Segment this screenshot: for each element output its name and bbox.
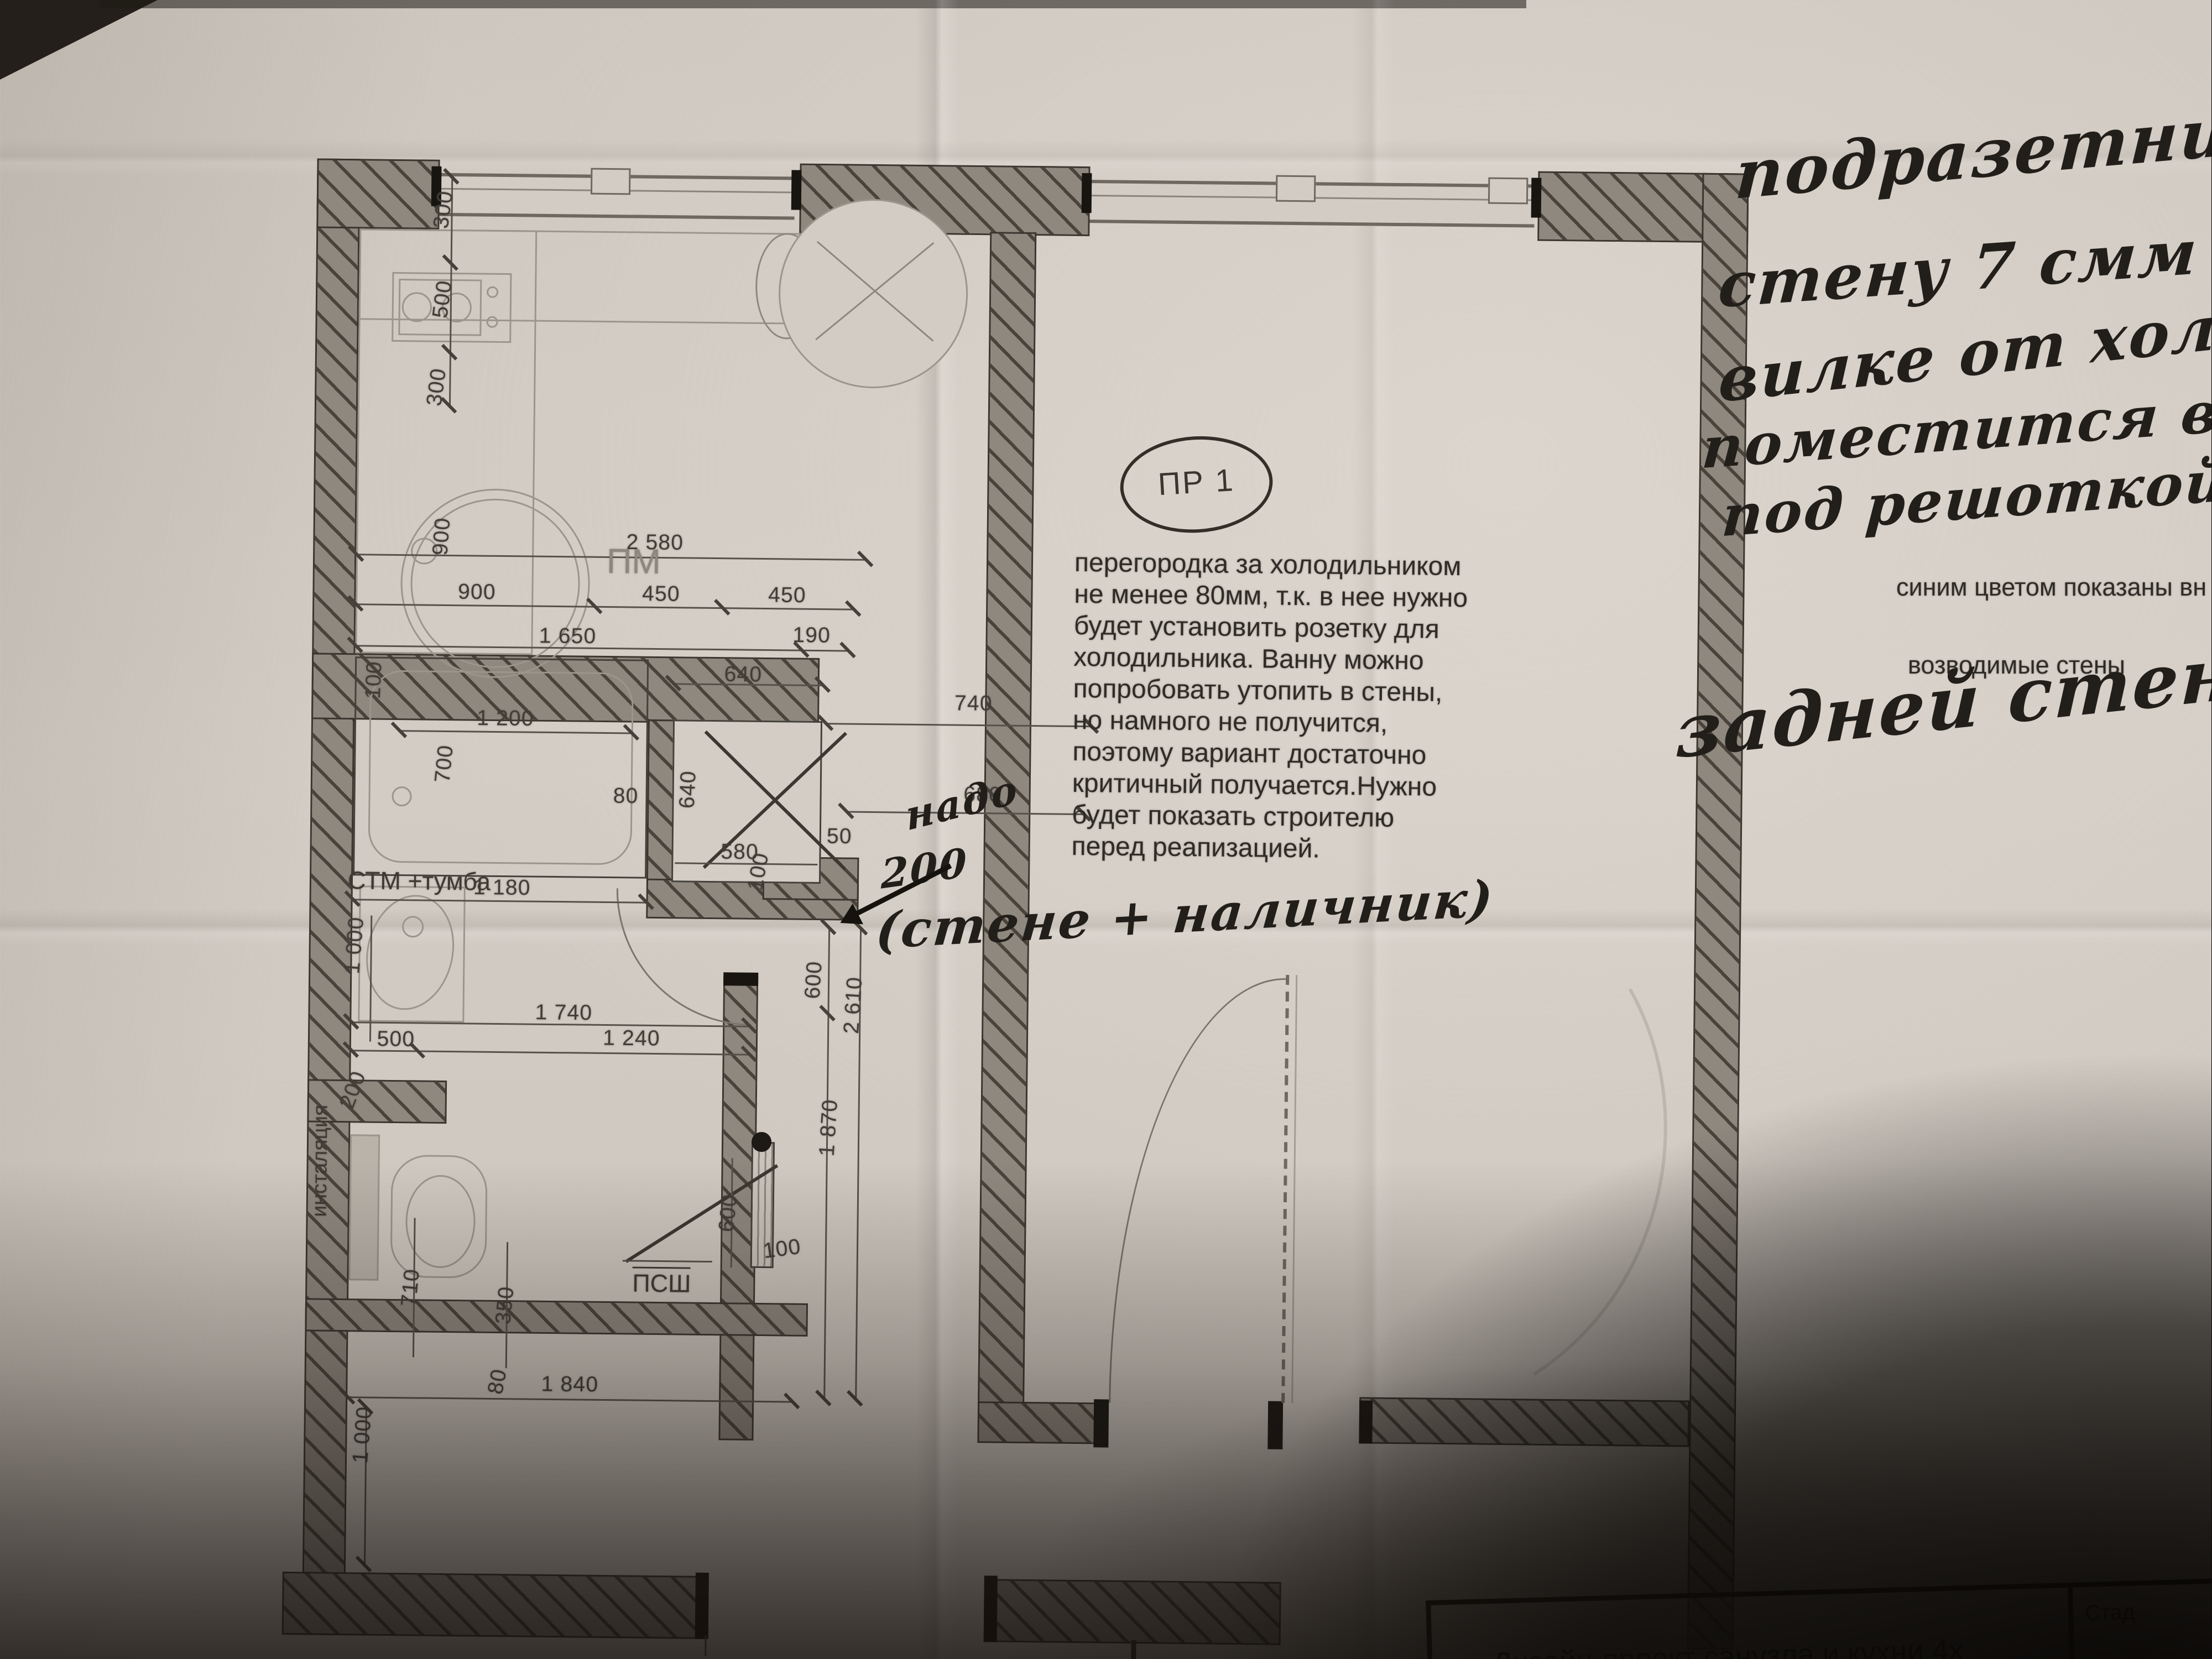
wall-below-entry bbox=[1131, 1640, 1136, 1659]
dimension-label: 1 870 bbox=[814, 1098, 842, 1157]
note-line: будет установить розетку для bbox=[1074, 611, 1469, 646]
dimension-label: 2 610 bbox=[838, 976, 867, 1035]
dimension-label: 80 bbox=[482, 1366, 512, 1396]
dimension-label: 700 bbox=[429, 744, 457, 784]
dimension-label: 190 bbox=[792, 622, 831, 648]
note-line: критичный получается.Нужно bbox=[1072, 769, 1468, 804]
dimension-label: 1 200 bbox=[477, 705, 534, 731]
dimension-label: 100 bbox=[761, 1234, 802, 1263]
dimension-label: 740 bbox=[954, 690, 993, 716]
dimension-label: 300 bbox=[428, 189, 458, 230]
dimension-label: 1 740 bbox=[535, 999, 592, 1025]
dimension-label: 900 bbox=[427, 517, 455, 556]
window-mullion-2 bbox=[1276, 175, 1316, 202]
dimension-label: 1 650 bbox=[539, 623, 597, 648]
stove-burner-small bbox=[486, 316, 498, 328]
towel-dryer-label: ПСШ bbox=[632, 1267, 691, 1299]
wall-hall-stub bbox=[977, 1401, 1102, 1444]
towel-dryer-triangle-base bbox=[623, 1260, 712, 1263]
dim-line bbox=[823, 927, 831, 1400]
dimension-label: 450 bbox=[642, 581, 680, 606]
dimension-label: 710 bbox=[396, 1267, 424, 1308]
bathtub-drain bbox=[392, 786, 411, 806]
door-jamb-hall-left bbox=[1093, 1399, 1109, 1447]
note-line: перегородка за холодильником bbox=[1074, 548, 1470, 583]
printed-note: перегородка за холодильникомне менее 80м… bbox=[1071, 548, 1469, 867]
window-mullion-3 bbox=[1488, 178, 1528, 205]
dimension-label: 450 bbox=[768, 582, 806, 608]
partition-line bbox=[1291, 975, 1298, 1403]
note-marker: ПР 1 bbox=[1118, 432, 1276, 537]
note-line: будет показать строителю bbox=[1072, 800, 1467, 836]
dimension-label: 640 bbox=[724, 661, 762, 687]
dimension-label: 1 840 bbox=[541, 1371, 598, 1396]
door-jamb-entry-right bbox=[984, 1575, 998, 1642]
dimension-label: 100 bbox=[360, 660, 387, 700]
dishwasher-label: ПМ bbox=[607, 543, 661, 583]
dimension-label: 600 bbox=[800, 960, 827, 999]
title-block-divider bbox=[2068, 1588, 2075, 1659]
washbasin-faucet bbox=[402, 916, 424, 937]
wall-room-bottom bbox=[1359, 1397, 1689, 1447]
towel-dryer-point bbox=[752, 1132, 771, 1152]
dimension-label: 640 bbox=[674, 770, 701, 809]
dimension-label: 50 bbox=[827, 823, 852, 848]
bathtub-inner bbox=[368, 670, 634, 865]
installation-label: инсталяция bbox=[308, 1104, 332, 1217]
hall-door-arc bbox=[1109, 977, 1286, 1405]
dim-line bbox=[826, 723, 1091, 728]
dimension-label: 1 000 bbox=[347, 1405, 377, 1464]
stage-label: Стад bbox=[2085, 1599, 2135, 1625]
photographed-floorplan: 3005003002 5809009004504501 650190640740… bbox=[0, 0, 2212, 1659]
door-jamb-entry-left bbox=[695, 1573, 709, 1639]
note-line: холодильника. Ванну можно bbox=[1073, 643, 1469, 678]
washing-machine-label: СТМ +тумба bbox=[348, 867, 491, 897]
note-line: поэтому вариант достаточно bbox=[1072, 737, 1468, 773]
dimension-label: 350 bbox=[490, 1285, 518, 1326]
installation-frame bbox=[348, 1134, 380, 1281]
dimension-label: 80 bbox=[613, 783, 638, 808]
wall-top-left-corner bbox=[316, 158, 440, 229]
wall-bottom-left bbox=[282, 1572, 709, 1639]
window-jamb bbox=[791, 170, 802, 210]
legend-line-1: синим цветом показаны вн bbox=[1896, 574, 2206, 602]
entry-door-leaf bbox=[705, 1636, 707, 1656]
project-title: Дизайн-проект санузла и кухни 4х bbox=[1491, 1634, 1964, 1659]
dimension-label: 500 bbox=[427, 279, 457, 320]
door-jamb-room bbox=[1359, 1400, 1373, 1443]
note-line: не менее 80мм, т.к. в нее нужно bbox=[1074, 580, 1469, 615]
door-jamb-hall-right bbox=[1267, 1401, 1283, 1449]
dimension-label: 1 240 bbox=[603, 1025, 660, 1050]
dimension-label: 600 bbox=[713, 1193, 742, 1233]
dimension-label: 500 bbox=[377, 1026, 415, 1051]
note-line: но намного не получится, bbox=[1073, 706, 1468, 741]
dimension-label: 1 000 bbox=[339, 916, 368, 975]
bathroom-door-arc bbox=[615, 888, 753, 1026]
stove-burner bbox=[402, 292, 432, 322]
window-jamb bbox=[1082, 173, 1092, 213]
dimension-label: 900 bbox=[458, 579, 496, 604]
window-mullion bbox=[591, 168, 630, 195]
wall-bottom-right bbox=[987, 1579, 1281, 1645]
wall-toilet-bottom bbox=[305, 1298, 808, 1337]
note-line: попробовать утопить в стены, bbox=[1073, 674, 1468, 709]
window-jamb bbox=[1531, 178, 1542, 217]
stove-burner-small bbox=[487, 286, 498, 298]
dimension-label: 300 bbox=[421, 367, 451, 408]
note-line: перед реапизацией. bbox=[1071, 832, 1467, 867]
